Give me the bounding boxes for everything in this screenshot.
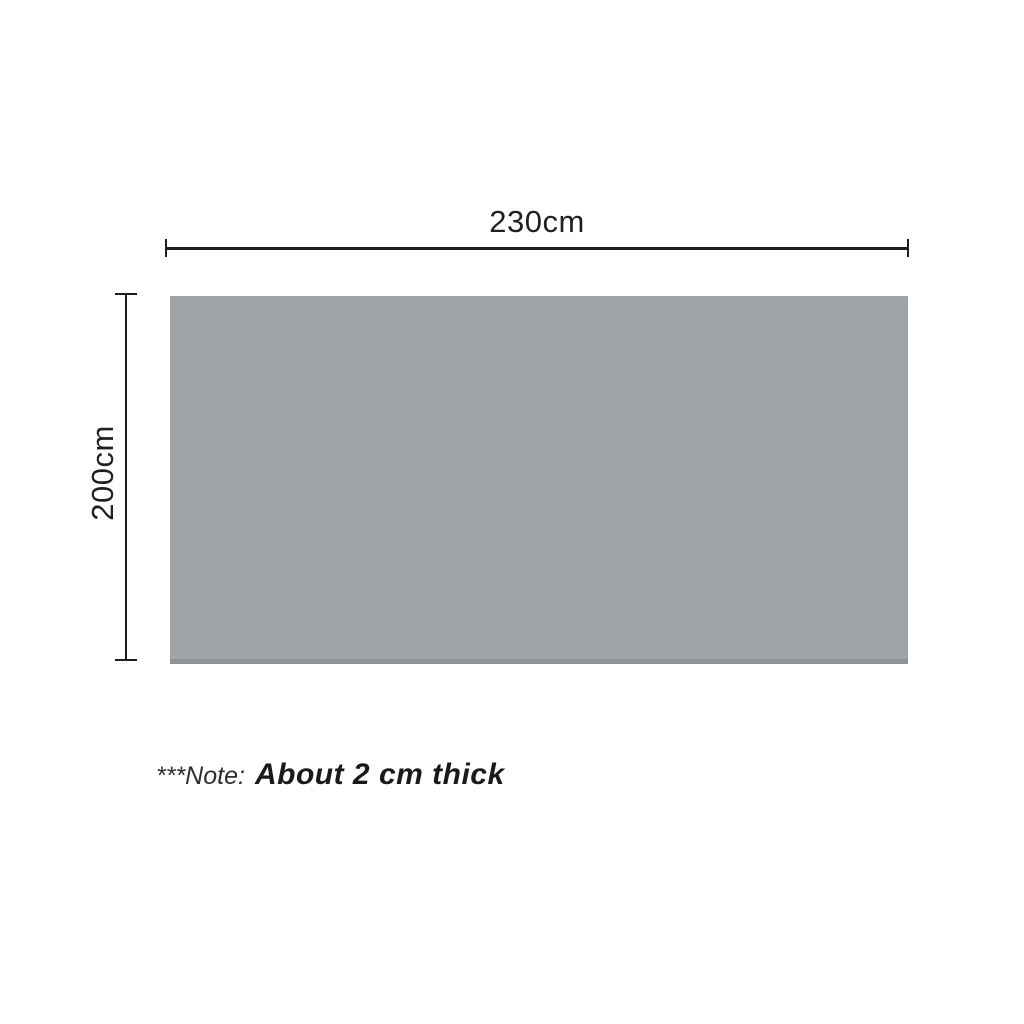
width-dimension-label: 230cm bbox=[165, 204, 909, 240]
width-dimension-rule bbox=[167, 247, 907, 250]
note: ***Note:About 2 cm thick bbox=[156, 756, 505, 799]
dimension-tick-right bbox=[907, 239, 909, 257]
dimension-tick-bottom bbox=[115, 659, 137, 661]
width-dimension-line bbox=[165, 239, 909, 257]
height-dimension-rule bbox=[125, 295, 127, 659]
note-body: About 2 cm thick bbox=[255, 758, 505, 791]
dimension-diagram: 230cm 200cm ***Note:About 2 cm thick bbox=[0, 0, 1024, 1024]
height-dimension-line bbox=[115, 293, 137, 661]
note-prefix: ***Note: bbox=[156, 762, 245, 790]
product-panel bbox=[170, 296, 908, 664]
